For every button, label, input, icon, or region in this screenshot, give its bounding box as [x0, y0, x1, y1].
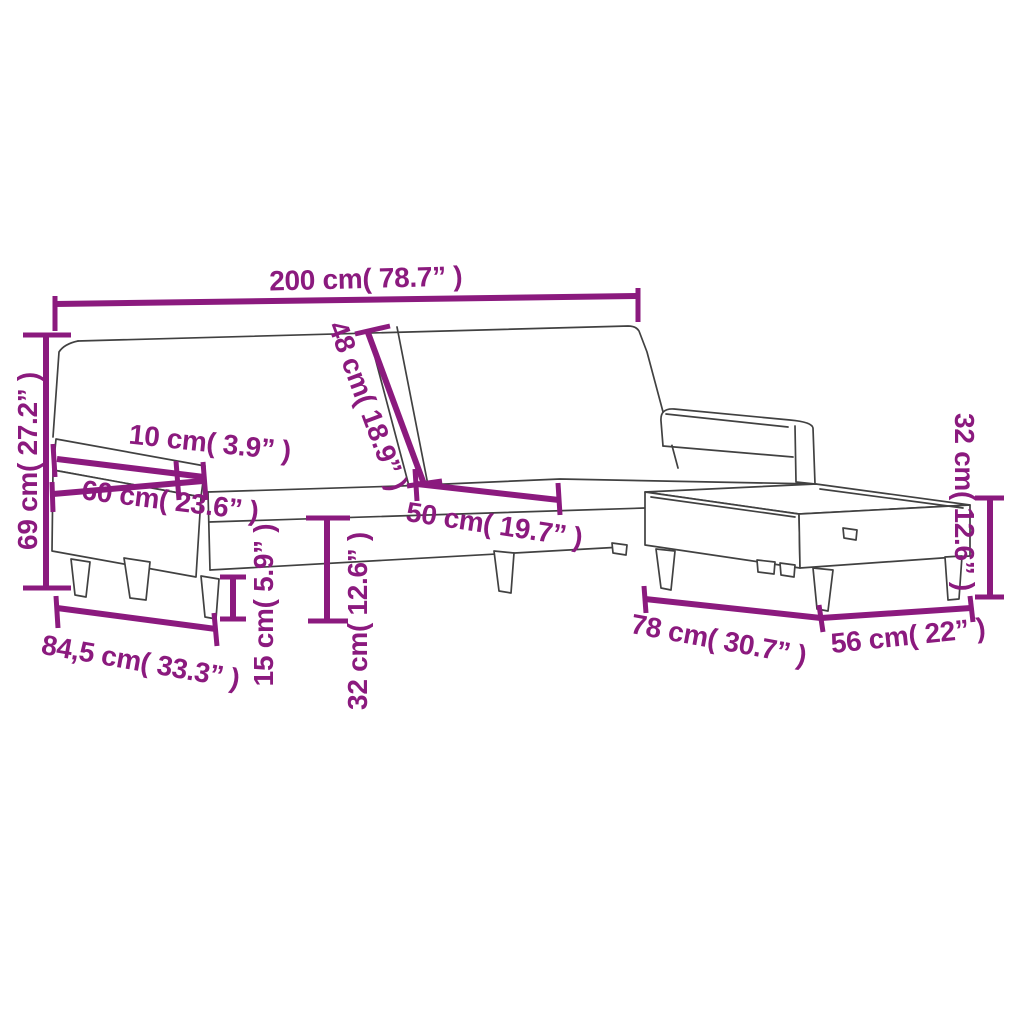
- footstool-front-leg: [813, 568, 833, 611]
- dim-label-footstool-length: 78 cm( 30.7” ): [628, 608, 809, 671]
- dimension-diagram-image: 200 cm( 78.7” ) 48 cm( 18.9” ) 69 cm( 27…: [0, 0, 1024, 1024]
- dim-label-total-width: 200 cm( 78.7” ): [269, 260, 463, 296]
- dim-label-leg-height: 15 cm( 5.9” ): [248, 524, 279, 687]
- footstool-left-leg: [656, 549, 675, 590]
- dim-label-footstool-height: 32 cm( 12.6” ): [949, 413, 980, 591]
- dim-label-footstool-width: 56 cm( 22” ): [829, 612, 987, 659]
- folded-backrest-rail: [661, 409, 815, 484]
- dim-footstool-width: 56 cm( 22” ): [821, 596, 987, 659]
- dimension-annotations: 200 cm( 78.7” ) 48 cm( 18.9” ) 69 cm( 27…: [12, 260, 1004, 709]
- dim-footstool-length: 78 cm( 30.7” ): [628, 586, 823, 671]
- footstool-rear-leg-tab-2: [780, 563, 795, 577]
- seat-front-left-leg: [201, 576, 219, 619]
- dim-seat-height: 32 cm( 12.6” ): [306, 518, 373, 710]
- dim-label-total-depth: 84,5 cm( 33.3” ): [39, 629, 242, 694]
- footstool-rear-leg-tab-1: [757, 560, 775, 574]
- folded-backrest-rail-bottom: [663, 446, 793, 457]
- backrest-left-profile: [53, 341, 78, 437]
- diagram-svg: 200 cm( 78.7” ) 48 cm( 18.9” ) 69 cm( 27…: [0, 0, 1024, 1024]
- seat-hidden-leg-tab: [843, 528, 857, 540]
- dim-footstool-height: 32 cm( 12.6” ): [949, 413, 1004, 597]
- dim-label-total-height: 69 cm( 27.2” ): [12, 372, 43, 550]
- armrest-inner-leg: [124, 558, 150, 600]
- seat-rear-leg-tab: [612, 543, 627, 555]
- armrest-front-leg: [71, 559, 90, 597]
- seat-front-middle-leg: [494, 551, 514, 593]
- dim-label-seat-height: 32 cm( 12.6” ): [342, 532, 373, 710]
